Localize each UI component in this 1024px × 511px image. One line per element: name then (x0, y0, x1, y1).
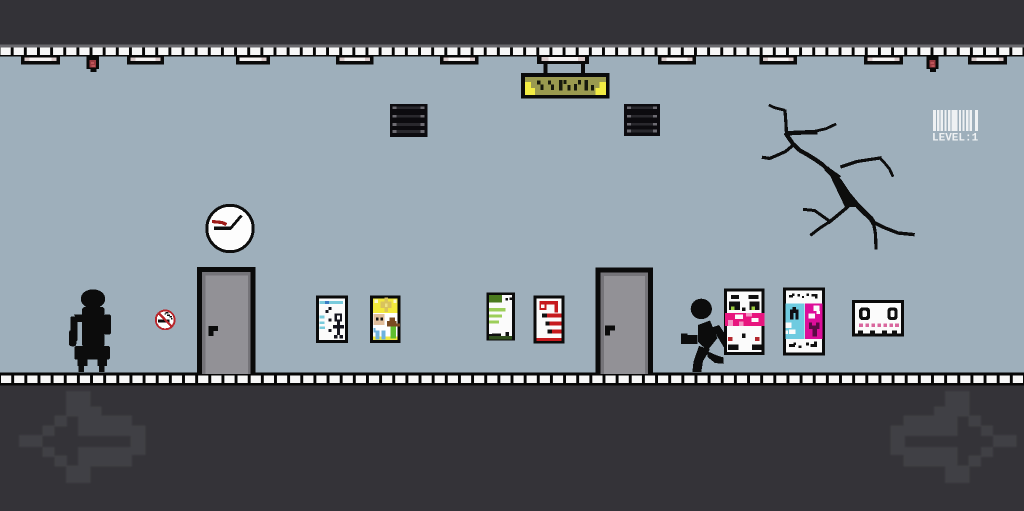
svg-text:LEVEL:1: LEVEL:1 (932, 133, 979, 145)
